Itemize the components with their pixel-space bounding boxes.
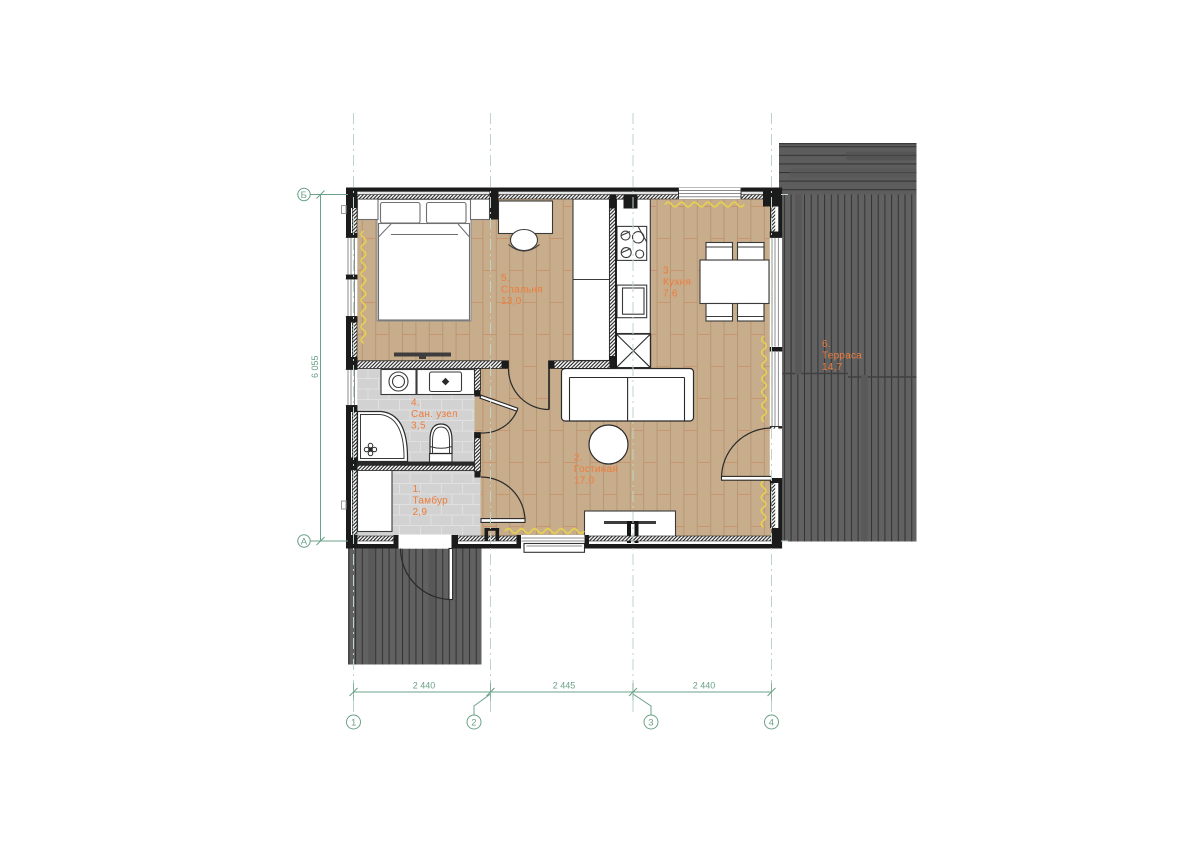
svg-text:1: 1: [351, 718, 356, 729]
svg-text:2 445: 2 445: [553, 681, 576, 691]
svg-text:14,7: 14,7: [822, 362, 843, 373]
svg-text:Тамбур: Тамбур: [413, 495, 449, 507]
svg-text:Терраса: Терраса: [822, 351, 862, 362]
svg-text:3.: 3.: [663, 266, 672, 277]
svg-text:3: 3: [648, 718, 653, 729]
svg-text:4.: 4.: [411, 398, 420, 409]
svg-text:1.: 1.: [413, 484, 422, 495]
svg-text:3,5: 3,5: [411, 421, 426, 432]
svg-text:17.0: 17.0: [574, 476, 595, 487]
svg-text:А: А: [301, 537, 308, 548]
svg-text:7,6: 7,6: [663, 289, 678, 300]
svg-text:Гостиная: Гостиная: [574, 464, 618, 475]
svg-text:4: 4: [769, 718, 774, 729]
svg-text:Спальня: Спальня: [501, 285, 543, 296]
svg-text:6 055: 6 055: [310, 355, 320, 378]
svg-text:Кухня: Кухня: [663, 277, 691, 288]
svg-text:2.: 2.: [574, 453, 583, 464]
svg-text:Б: Б: [301, 190, 307, 201]
svg-text:2 440: 2 440: [413, 681, 436, 691]
svg-text:5.: 5.: [501, 273, 510, 284]
svg-text:6.: 6.: [822, 339, 831, 350]
svg-text:2 440: 2 440: [693, 681, 716, 691]
svg-text:2,9: 2,9: [413, 507, 428, 518]
svg-text:Сан. узел: Сан. узел: [411, 409, 458, 420]
svg-text:13,0: 13,0: [501, 296, 522, 307]
svg-text:2: 2: [471, 718, 476, 729]
